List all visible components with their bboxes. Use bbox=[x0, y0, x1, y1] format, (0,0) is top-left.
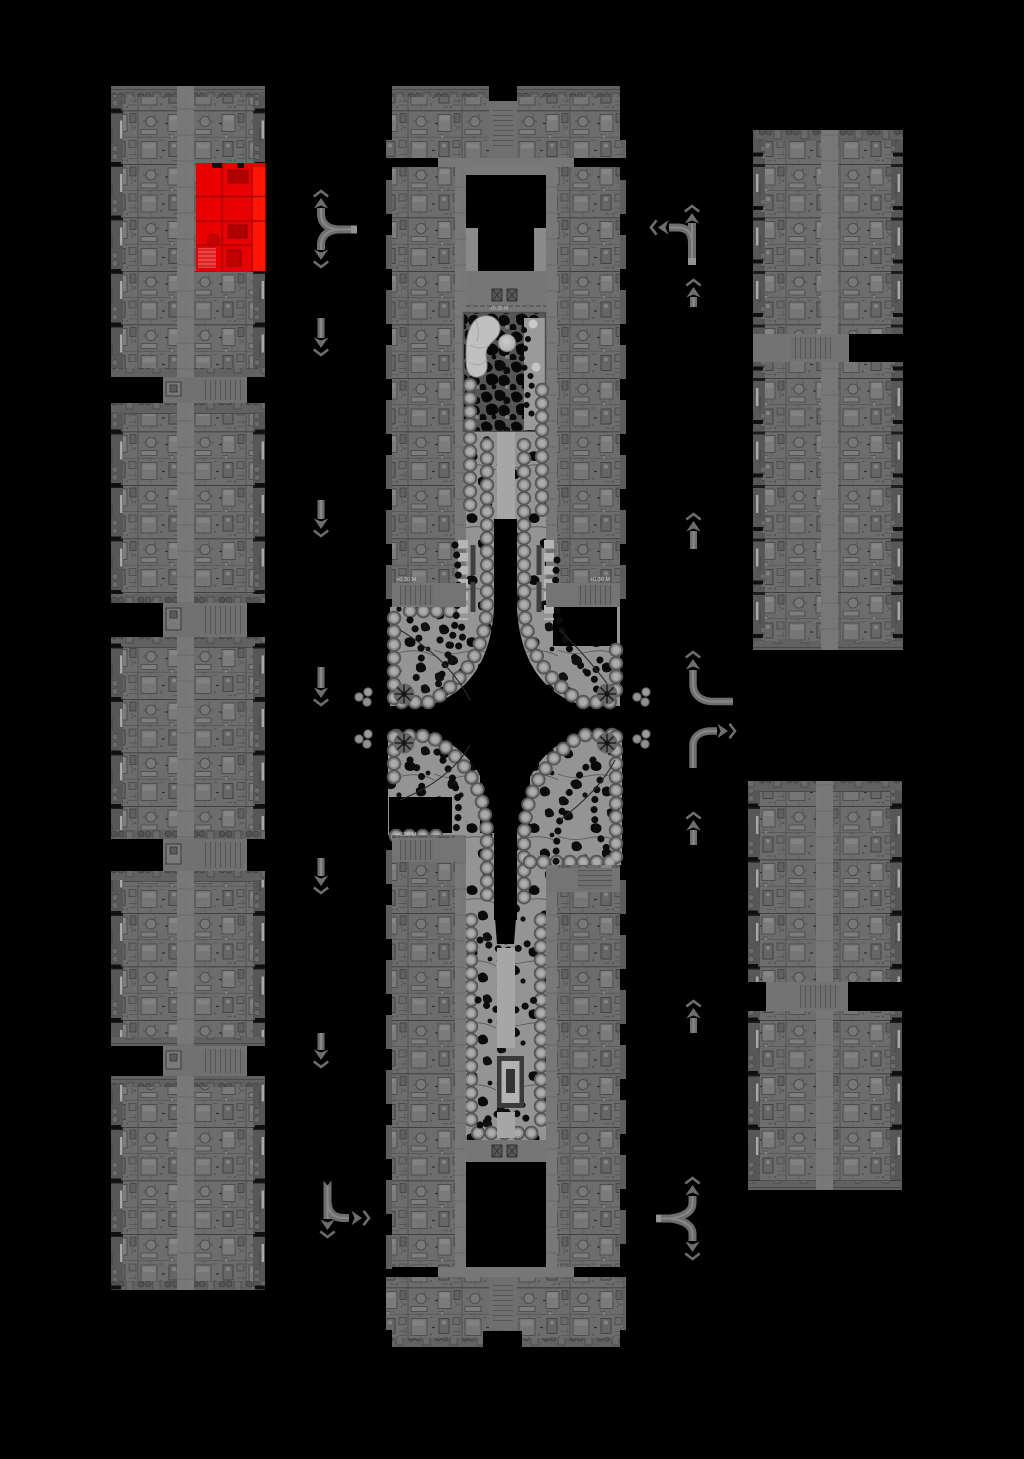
svg-text:+0.30 M: +0.30 M bbox=[490, 306, 508, 312]
svg-text:+0.30 M: +0.30 M bbox=[396, 832, 416, 838]
svg-text:+0.30 M: +0.30 M bbox=[590, 577, 610, 583]
svg-text:+0.30 M: +0.30 M bbox=[396, 577, 416, 583]
